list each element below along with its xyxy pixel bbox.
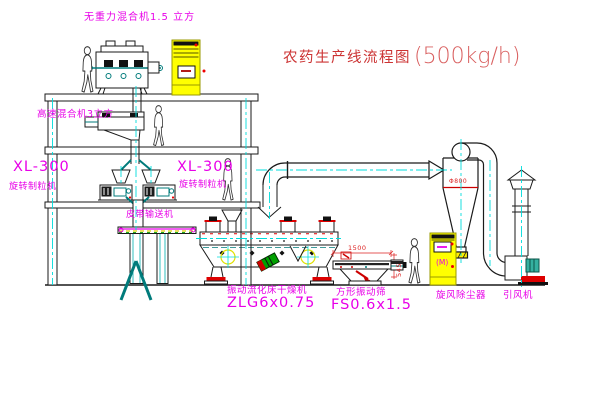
label-high-speed-mixer: 高速混合机3立方 [37,110,114,120]
belt-conveyor [118,227,196,300]
exhaust-stack-and-fan [505,170,548,285]
fluid-bed-dryer [200,185,338,285]
screen-hopper [340,269,388,281]
worker-ground [409,239,420,283]
label-screen-model: FS0.6x1.5 [331,298,412,313]
conveyor-support-right [157,234,168,284]
gravity-free-mixer [88,41,163,101]
label-cabinet-motor-mark: (M) [436,259,448,267]
dryer-top-ports [205,217,336,233]
dim-screen-height: 545 [396,263,403,277]
dryer-feed-funnel [222,210,242,221]
label-dryer-model: ZLG6x0.75 [227,296,315,311]
title-text: 农药生产线流程图 [283,46,411,67]
label-granulator-left-model: XL-300 [13,160,70,175]
label-gravity-free-mixer: 无重力混合机1.5 立方 [84,13,195,23]
floor2-slab [45,202,260,208]
control-cabinet-roof [172,40,200,95]
diagram-title: 农药生产线流程图 (500kg/h) [283,44,520,69]
label-cyclone-diameter: Φ800 [449,179,467,185]
fan-motor [526,259,539,272]
label-granulator-right-model: XL-300 [177,160,234,175]
label-cyclone: 旋风除尘器 [436,291,486,301]
label-granulator-right-name: 旋转制粒机 [179,181,227,190]
worker-floor3 [154,106,164,146]
downcomer-inner [467,160,484,253]
roof-slab [45,94,258,101]
worker-roof [82,47,93,92]
label-fan: 引风机 [503,291,533,301]
floor3-slab [45,147,258,154]
pesticide-line-flow-diagram: 农药生产线流程图 (500kg/h) 无重力混合机1.5 立方 高速混合机3立方… [0,0,600,403]
label-granulator-left-name: 旋转制粒机 [9,183,57,192]
label-belt-conveyor: 皮带输送机 [126,211,174,220]
title-capacity: (500kg/h) [414,44,520,69]
dim-screen-width: 1500 [348,245,367,252]
